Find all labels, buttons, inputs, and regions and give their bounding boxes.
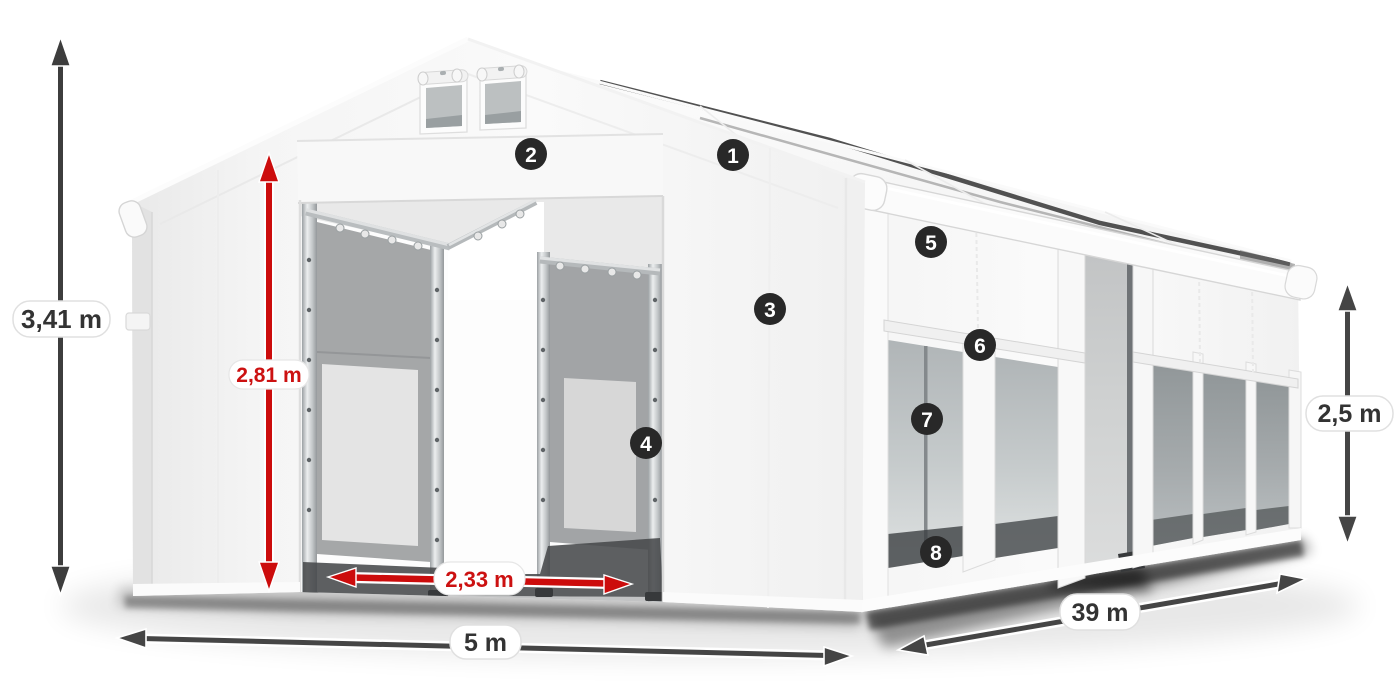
svg-text:7: 7 — [921, 409, 933, 432]
svg-text:4: 4 — [640, 433, 652, 456]
svg-text:5 m: 5 m — [464, 629, 507, 657]
svg-text:2,5 m: 2,5 m — [1318, 400, 1382, 428]
svg-text:3: 3 — [764, 299, 776, 322]
svg-text:6: 6 — [974, 335, 986, 358]
svg-text:3,41 m: 3,41 m — [21, 304, 102, 334]
svg-text:8: 8 — [930, 542, 942, 565]
svg-text:39 m: 39 m — [1072, 599, 1129, 627]
svg-text:5: 5 — [925, 232, 937, 255]
svg-text:2,81 m: 2,81 m — [236, 364, 301, 387]
svg-text:2: 2 — [525, 144, 537, 167]
svg-text:2,33 m: 2,33 m — [445, 567, 514, 592]
svg-text:1: 1 — [727, 145, 739, 168]
